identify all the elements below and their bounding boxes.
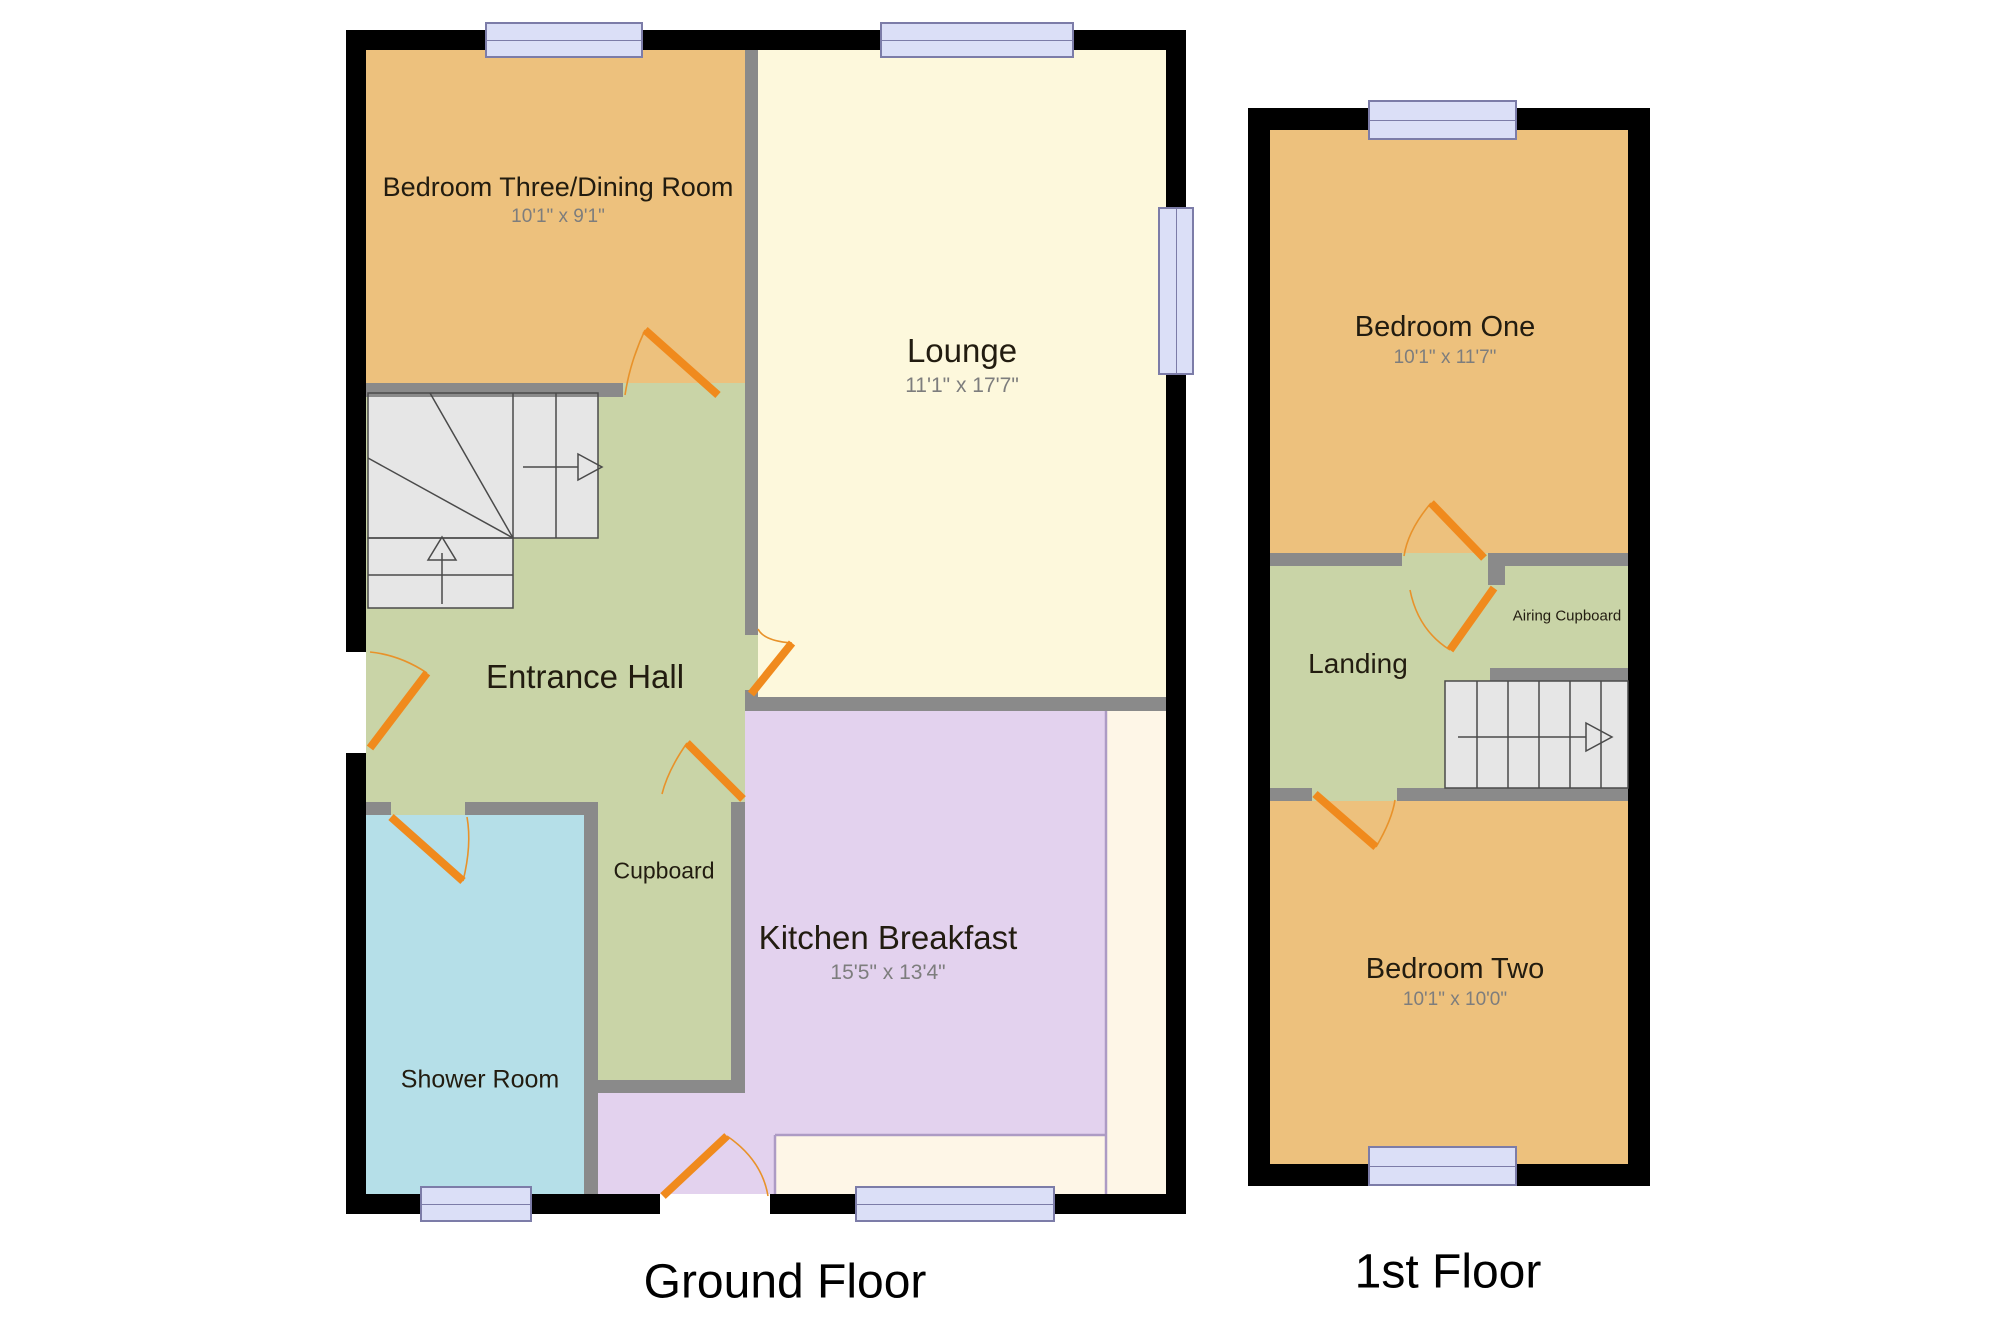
window-lounge-right <box>1158 207 1194 375</box>
wall-b1-bottom-left <box>1270 553 1402 566</box>
room-name: Kitchen Breakfast <box>759 919 1018 957</box>
doorway-bedroom-one <box>1402 553 1488 566</box>
room-name: Bedroom Three/Dining Room <box>383 172 734 203</box>
wall-landing-b2-right <box>1397 788 1628 801</box>
room-dims: 10'1" x 11'7" <box>1355 347 1536 369</box>
window-bedroom-two-bottom <box>1368 1146 1517 1186</box>
gwall-left-upper <box>346 30 366 652</box>
doorway-lounge <box>745 635 758 690</box>
wall-kitchen-top <box>745 697 1166 711</box>
room-name: Airing Cupboard <box>1513 608 1621 625</box>
room-name: Lounge <box>905 332 1019 370</box>
right-recess-strip <box>1106 711 1166 1194</box>
wall-cupboard-right <box>731 802 745 1093</box>
room-name: Cupboard <box>613 858 714 885</box>
label-bedroom-one: Bedroom One 10'1" x 11'7" <box>1355 311 1536 369</box>
fwall-left <box>1248 108 1270 1186</box>
window-bedroom-three-top <box>485 22 643 58</box>
wall-shower-right <box>584 802 598 1194</box>
stairs-first <box>1445 681 1628 788</box>
wall-shower-top <box>465 802 584 815</box>
label-entrance-hall: Entrance Hall <box>486 658 684 696</box>
room-shower <box>366 815 584 1194</box>
floorplan-canvas: Bedroom Three/Dining Room 10'1" x 9'1" L… <box>0 0 2000 1333</box>
window-shower-bottom <box>420 1186 532 1222</box>
title-first-floor: 1st Floor <box>1355 1245 1542 1300</box>
label-bedroom-three: Bedroom Three/Dining Room 10'1" x 9'1" <box>383 172 734 228</box>
wall-b1-bottom-right <box>1505 553 1628 566</box>
window-kitchen-bottom <box>855 1186 1055 1222</box>
room-name: Bedroom One <box>1355 311 1536 344</box>
room-name: Bedroom Two <box>1366 953 1544 986</box>
doorway-shower <box>391 802 465 815</box>
room-dims: 10'1" x 9'1" <box>383 206 734 228</box>
gwall-left-lower <box>346 753 366 1214</box>
wall-airing-bottom <box>1490 668 1628 681</box>
wall-b1-stub <box>1488 553 1505 585</box>
wall-lounge-left <box>745 50 758 635</box>
label-shower-room: Shower Room <box>401 1066 559 1095</box>
label-airing-cupboard: Airing Cupboard <box>1513 608 1621 625</box>
wall-cupboard-bottom <box>584 1080 745 1093</box>
wall-landing-b2-left <box>1270 788 1312 801</box>
window-bedroom-one-top <box>1368 100 1517 140</box>
stairs-ground-upper <box>368 393 598 538</box>
room-cupboard <box>598 802 731 1080</box>
stairs-ground-lower <box>368 538 513 608</box>
room-dims: 10'1" x 10'0" <box>1366 989 1544 1011</box>
wall-shower-top-stub <box>366 802 391 815</box>
fwall-right <box>1628 108 1650 1186</box>
doorway-bedroom-two <box>1312 788 1397 801</box>
room-name: Entrance Hall <box>486 658 684 696</box>
room-kitchen-left <box>598 1093 745 1194</box>
room-name: Shower Room <box>401 1066 559 1095</box>
window-lounge-top <box>880 22 1074 58</box>
doorway-bedroom-three <box>623 383 745 397</box>
wall-bedroom-three-bottom <box>366 383 623 397</box>
label-landing: Landing <box>1308 648 1408 680</box>
label-bedroom-two: Bedroom Two 10'1" x 10'0" <box>1366 953 1544 1011</box>
label-cupboard: Cupboard <box>613 858 714 885</box>
label-lounge: Lounge 11'1" x 17'7" <box>905 332 1019 398</box>
label-kitchen: Kitchen Breakfast 15'5" x 13'4" <box>759 919 1018 985</box>
room-dims: 11'1" x 17'7" <box>905 374 1019 398</box>
room-dims: 15'5" x 13'4" <box>759 961 1018 985</box>
title-ground-floor: Ground Floor <box>644 1255 927 1310</box>
room-name: Landing <box>1308 648 1408 680</box>
